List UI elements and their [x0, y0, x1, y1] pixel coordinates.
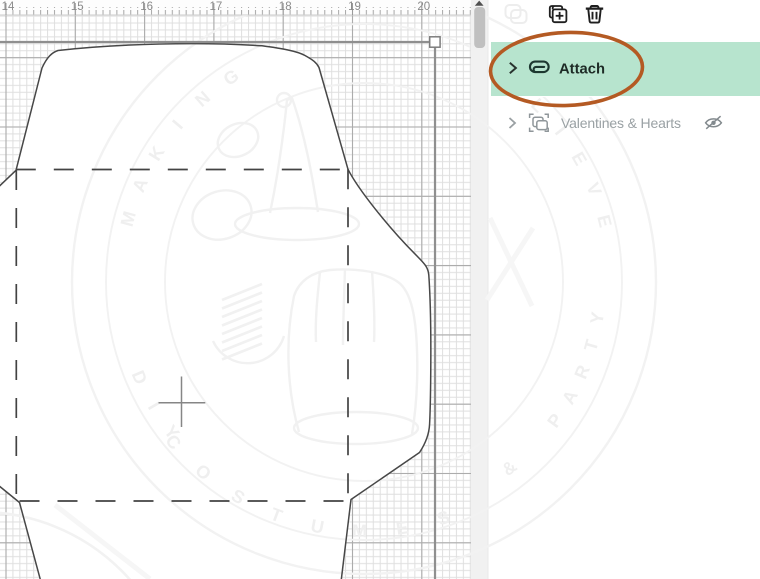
- svg-text:17: 17: [210, 1, 223, 13]
- svg-text:18: 18: [279, 1, 292, 13]
- svg-text:16: 16: [140, 1, 153, 13]
- svg-text:15: 15: [71, 1, 84, 13]
- svg-text:20: 20: [417, 1, 430, 13]
- svg-text:Attach: Attach: [559, 62, 605, 78]
- svg-text:14: 14: [2, 1, 15, 13]
- svg-text:M: M: [352, 521, 367, 541]
- svg-text:Valentines & Hearts: Valentines & Hearts: [561, 115, 681, 131]
- svg-text:19: 19: [348, 1, 361, 13]
